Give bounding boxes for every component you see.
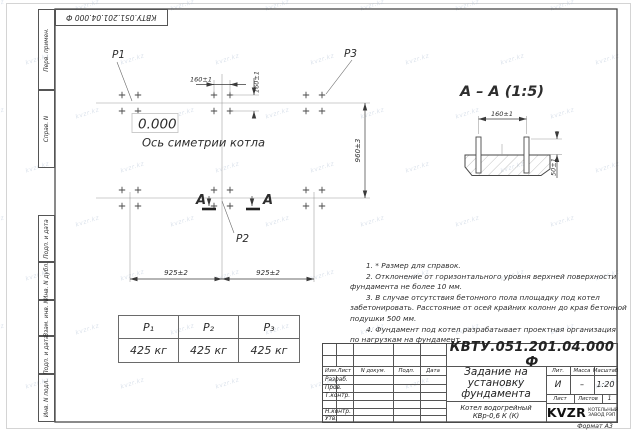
tb-sheet-label: Лист — [546, 394, 574, 403]
margin-label-podp-data-2: Подп. и дата — [44, 335, 50, 375]
anchor-bolt-left — [476, 137, 481, 173]
title-block: Изм.Лист N докум. Подп. Дата Разраб. Про… — [322, 343, 618, 423]
margin-box-sprav-n: Справ. N — [38, 90, 55, 168]
dim-160-vertical-label: 160±1 — [253, 71, 261, 93]
tb-header-data: Дата — [420, 366, 446, 375]
tb-scale-value: 1:20 — [594, 375, 617, 394]
tb-header-izm-list: Изм.Лист — [323, 366, 353, 375]
company-subtitle: КОТЕЛЬНЫЙ ЗАВОД РЭП — [588, 408, 618, 418]
tb-row-prov: Пров. — [323, 384, 353, 392]
loads-table-header-p1: P₁ — [119, 316, 179, 339]
tb-mass-label: Масса — [570, 366, 594, 375]
margin-box-podp-data-1: Подп. и дата — [38, 215, 55, 262]
section-view: А – А (1:5) 160±1 50±1 — [459, 84, 562, 178]
dim-925-left-label: 925±2 — [164, 269, 188, 277]
tb-lit-value: И — [546, 375, 570, 394]
format-label: Формат А3 — [560, 423, 630, 430]
section-mark-left-label: А — [195, 193, 206, 208]
dim-925-right-label: 925±2 — [256, 269, 280, 277]
margin-box-vzam-inv-n: Взам. инв. N — [38, 300, 55, 336]
note-line: 1. * Размер для справок. — [350, 261, 618, 272]
margin-label-podp-data-1: Подп. и дата — [44, 219, 50, 259]
note-line: 4. Фундамент под котел разрабатывает про… — [350, 325, 618, 336]
loads-table-value-p2: 425 кг — [179, 339, 239, 362]
section-dim-160 — [479, 116, 527, 134]
elevation-label: 0.000 — [138, 117, 177, 133]
tb-row-tkontr: Т.контр. — [323, 392, 353, 400]
tb-doc-number: КВТУ.051.201.04.000 Ф — [446, 344, 618, 366]
plan-view: 925±2 925±2 960±3 160±1 — [96, 48, 370, 282]
section-dim-50-label: 50±1 — [550, 158, 558, 176]
note-line: 3. В случае отсутствия бетонного пола пл… — [350, 293, 618, 304]
margin-box-inv-n-dubl: Инв. N дубл. — [38, 262, 55, 300]
margin-box-podp-data-2: Подп. и дата — [38, 336, 55, 374]
tb-product-name: Котел водогрейный КВр-0,6 К (К) — [446, 401, 546, 422]
company-subtitle-line2: ЗАВОД РЭП — [588, 413, 615, 418]
company-logo-row: KVZR КОТЕЛЬНЫЙ ЗАВОД РЭП — [546, 403, 617, 422]
tb-row-razrab: Разраб. — [323, 375, 353, 384]
top-rotated-stamp: КВТУ.051.201.04.000 Ф — [55, 9, 168, 26]
dim-160-horizontal-label: 160±1 — [190, 76, 212, 84]
tb-scale-label: Масштаб — [594, 366, 617, 375]
load-label-p1: P1 — [112, 49, 125, 61]
tb-mass-value: – — [570, 375, 594, 394]
note-line: подушки 500 мм. — [350, 314, 618, 325]
section-dim-160-label: 160±1 — [491, 110, 513, 118]
tb-header-n-dokum: N докум. — [353, 366, 393, 375]
note-line: фундамента не более 10 мм. — [350, 282, 618, 293]
tb-lit-label: Лит. — [546, 366, 570, 375]
notes-block: 1. * Размер для справок. 2. Отклонение о… — [350, 261, 618, 346]
loads-table-value-p1: 425 кг — [119, 339, 179, 362]
load-label-p3: P3 — [344, 48, 357, 60]
top-stamp-doc-number: КВТУ.051.201.04.000 Ф — [66, 13, 157, 22]
loads-table-header-p2: P₂ — [179, 316, 239, 339]
tb-row-nkontr: Н.контр. — [323, 408, 353, 415]
tb-sheets-label: Листов — [574, 394, 602, 403]
margin-box-perv-primen: Перв. примен. — [38, 9, 55, 90]
tb-drawing-title: Задание на установку фундамента — [446, 366, 546, 401]
tb-line — [323, 400, 446, 401]
anchor-bolt-right — [524, 137, 529, 173]
drawing-sheet: kvzr.kzkvzr.kzkvzr.kzkvzr.kzkvzr.kzkvzr.… — [0, 0, 644, 430]
note-line: 2. Отклонение от горизонтального уровня … — [350, 272, 618, 283]
boiler-axis-caption: Ось симетрии котла — [142, 136, 265, 150]
tb-line — [323, 355, 446, 356]
section-title: А – А (1:5) — [459, 84, 544, 100]
margin-label-perv-primen: Перв. примен. — [44, 28, 50, 72]
loads-table-header-p3: P₃ — [239, 316, 299, 339]
note-line: забетонировать. Расстояние от осей крайн… — [350, 303, 618, 314]
margin-label-vzam-inv-n: Взам. инв. N — [44, 299, 50, 337]
margin-box-inv-n-podl: Инв. N подл. — [38, 374, 55, 422]
tb-row-utv: Утв. — [323, 415, 353, 422]
loads-table: P₁ P₂ P₃ 425 кг 425 кг 425 кг — [118, 315, 300, 363]
margin-label-sprav-n: Справ. N — [44, 116, 50, 143]
loads-table-value-p3: 425 кг — [239, 339, 299, 362]
company-name: KVZR — [547, 405, 586, 420]
tb-sheets-value: 1 — [602, 394, 617, 403]
margin-label-inv-n-podl: Инв. N подл. — [44, 379, 50, 417]
load-label-p2: P2 — [236, 233, 249, 245]
tb-header-podp: Подп. — [393, 366, 420, 375]
plan-axis-lines — [96, 74, 370, 282]
dim-960-label: 960±3 — [354, 139, 362, 163]
section-mark-right-label: А — [262, 193, 273, 208]
margin-label-inv-n-dubl: Инв. N дубл. — [44, 262, 50, 300]
